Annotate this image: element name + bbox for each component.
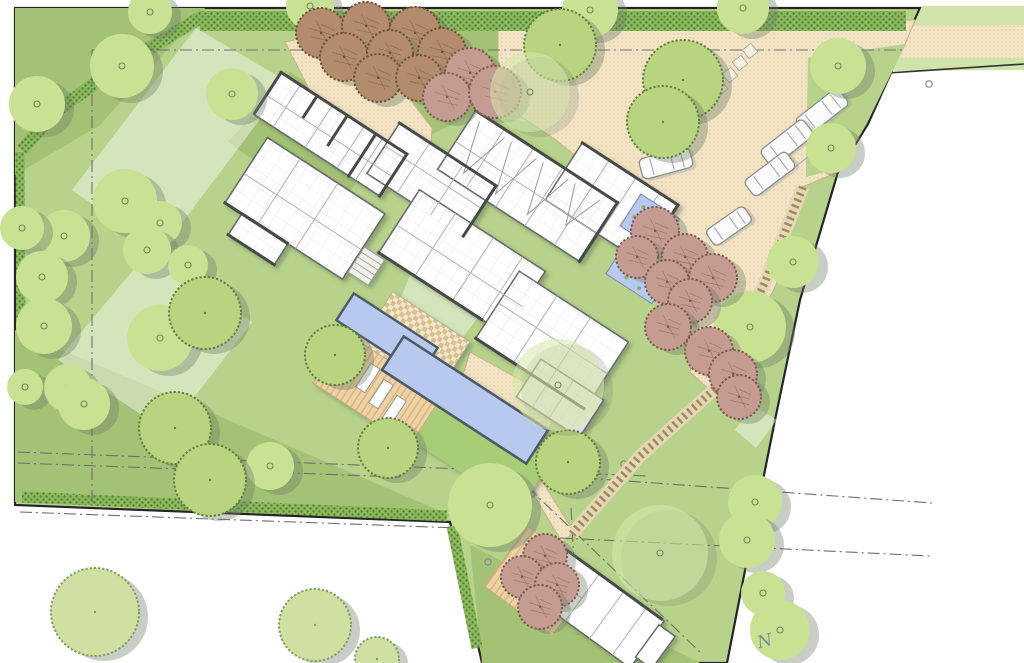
site-plan-page: N bbox=[0, 0, 1024, 663]
site-plan-canvas: N bbox=[0, 0, 1024, 663]
